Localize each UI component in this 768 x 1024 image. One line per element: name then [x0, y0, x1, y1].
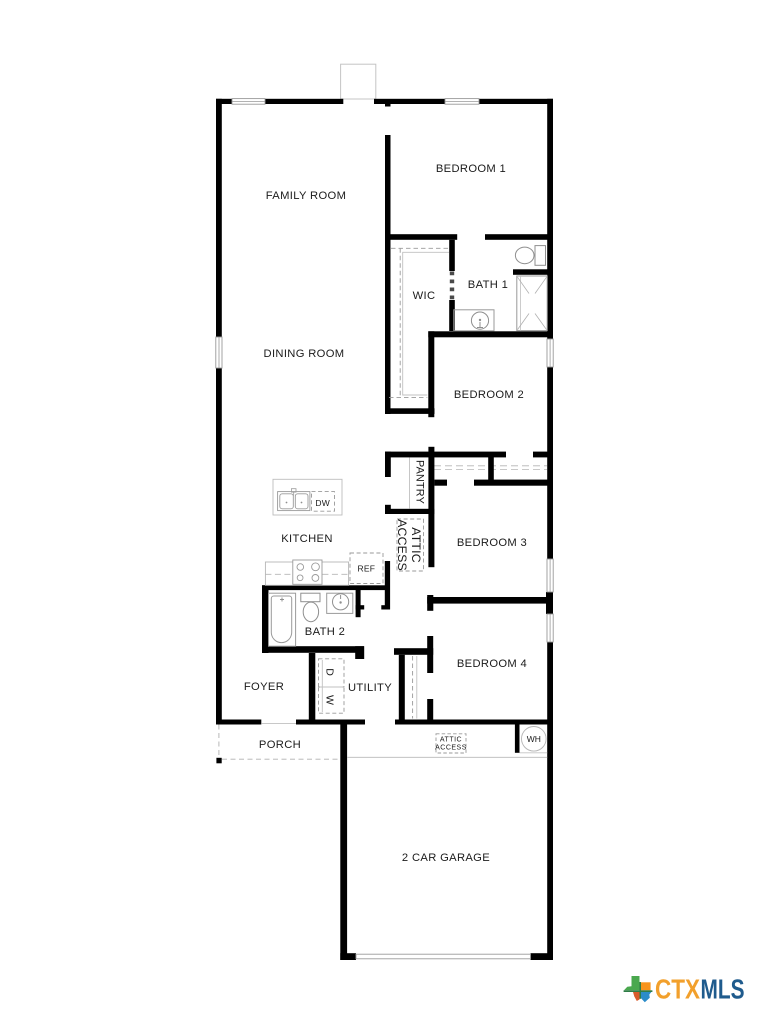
svg-text:WIC: WIC	[413, 290, 436, 302]
svg-text:BATH 2: BATH 2	[305, 626, 345, 638]
svg-text:ATTIC: ATTIC	[440, 737, 462, 744]
svg-text:PORCH: PORCH	[259, 739, 301, 751]
svg-text:BATH 1: BATH 1	[468, 279, 508, 291]
svg-text:UTILITY: UTILITY	[348, 682, 392, 694]
svg-text:BEDROOM 1: BEDROOM 1	[436, 163, 506, 175]
svg-text:ACCESS: ACCESS	[435, 745, 467, 752]
svg-text:REF: REF	[357, 564, 375, 574]
svg-text:BEDROOM 3: BEDROOM 3	[457, 537, 527, 549]
svg-text:KITCHEN: KITCHEN	[281, 533, 333, 545]
svg-text:DW: DW	[315, 498, 330, 508]
svg-text:PANTRY: PANTRY	[414, 460, 426, 504]
svg-text:WH: WH	[527, 734, 541, 744]
svg-text:CTX: CTX	[655, 974, 701, 1005]
svg-text:DINING ROOM: DINING ROOM	[264, 348, 345, 360]
svg-text:BEDROOM 4: BEDROOM 4	[457, 658, 527, 670]
svg-text:D: D	[324, 668, 336, 676]
svg-text:BEDROOM 2: BEDROOM 2	[454, 389, 524, 401]
svg-text:W: W	[324, 695, 336, 705]
svg-text:2 CAR GARAGE: 2 CAR GARAGE	[402, 852, 490, 864]
svg-text:FOYER: FOYER	[244, 681, 284, 693]
svg-text:FAMILY ROOM: FAMILY ROOM	[266, 190, 347, 202]
svg-text:MLS: MLS	[701, 974, 745, 1005]
